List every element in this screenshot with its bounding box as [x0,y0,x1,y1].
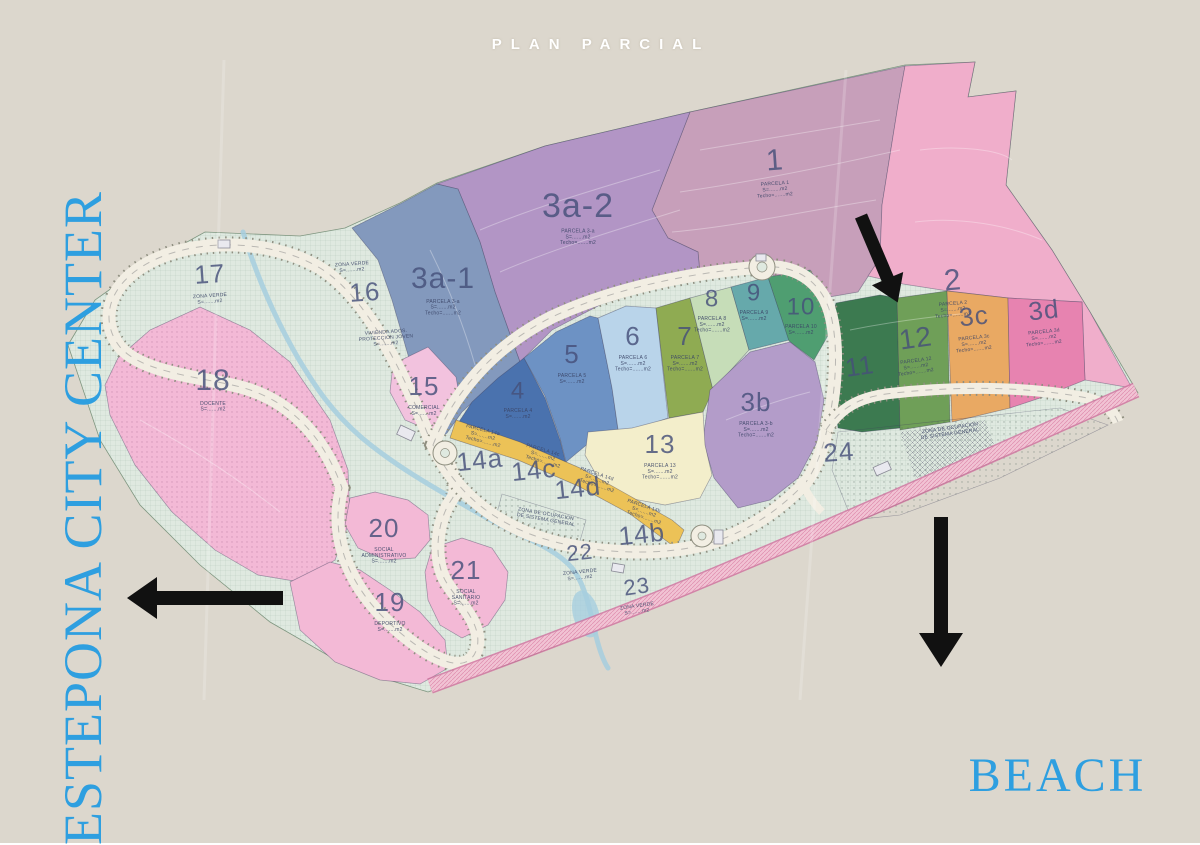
parcel-label-22: 22 [565,539,594,567]
parcel-label-16: 16 [348,276,381,308]
parcel-label-3a-2: 3a-2 [542,187,614,225]
parcel-label-18: 18 [195,364,230,397]
utility-box [714,530,723,544]
parcel-sub-9: S=.......m2 [741,316,766,322]
parcel-sub-20: S=.......m2 [371,559,396,565]
parcel-label-17: 17 [193,258,226,290]
parcel-sub-3a-1: Techo=.......m2 [425,310,461,316]
parcel-sub-7: Techo=.......m2 [667,367,703,373]
parcel-sub-18: S=.......m2 [200,407,225,413]
roundabout-south-island [698,532,706,540]
parcel-label-11: 11 [843,349,876,383]
plan-parcial-page: 1PARCELA 1S=.......m2Techo=.......m22PAR… [0,0,1200,843]
parcel-sub-8: Techo=.......m2 [694,328,730,334]
parcel-label-1: 1 [765,143,785,177]
city-center-label: ESTEPONA CITY CENTER [52,191,114,845]
parcel-sub-3a-2: Techo=.......m2 [560,240,596,246]
parcel-label-3b: 3b [741,387,772,417]
parcel-label-5: 5 [564,339,579,369]
arrow-beach [919,517,963,667]
parcel-sub-3b: Techo=.......m2 [738,433,774,439]
parcel-label-15: 15 [409,371,440,401]
parcel-label-20: 20 [369,513,400,543]
parcel-sub-21: S=.......m2 [453,601,478,607]
parcel-sub-5: S=.......m2 [559,379,584,385]
parcel-label-9: 9 [747,279,761,306]
parcel-label-6: 6 [625,321,640,351]
utility-box [611,563,624,573]
parcel-sub-10: S=.......m2 [788,330,813,336]
parcel-sub-4: S=.......m2 [505,414,530,420]
parcel-label-13: 13 [645,429,676,459]
parcel-label-8: 8 [705,285,719,312]
roundabout-west-island [441,449,450,458]
beach-label: BEACH [950,748,1165,803]
parcel-label-23: 23 [622,572,652,600]
parcel-label-2: 2 [943,263,963,297]
parcel-label-4: 4 [511,377,525,404]
parcel-sub-15: S=.......m2 [411,411,436,417]
parcel-sub-13: Techo=.......m2 [642,475,678,481]
parcel-label-3c: 3c [958,299,990,332]
utility-box [756,254,766,261]
parcel-label-24: 24 [822,436,855,468]
parcel-label-10: 10 [787,293,816,320]
parcel-label-3a-1: 3a-1 [411,262,475,295]
parcel-sub-6: Techo=.......m2 [615,367,651,373]
parcel-sub-19: S=.......m2 [377,627,402,633]
parcel-label-7: 7 [677,321,692,351]
page-title: PLAN PARCIAL [492,36,711,53]
roundabout-north-island [757,262,767,272]
parcel-label-21: 21 [451,555,482,585]
parcel-label-19: 19 [375,587,406,617]
site-plan-map: 1PARCELA 1S=.......m2Techo=.......m22PAR… [0,0,1200,843]
parcel-label-3d: 3d [1027,293,1061,326]
parcel-label-12: 12 [897,320,934,355]
